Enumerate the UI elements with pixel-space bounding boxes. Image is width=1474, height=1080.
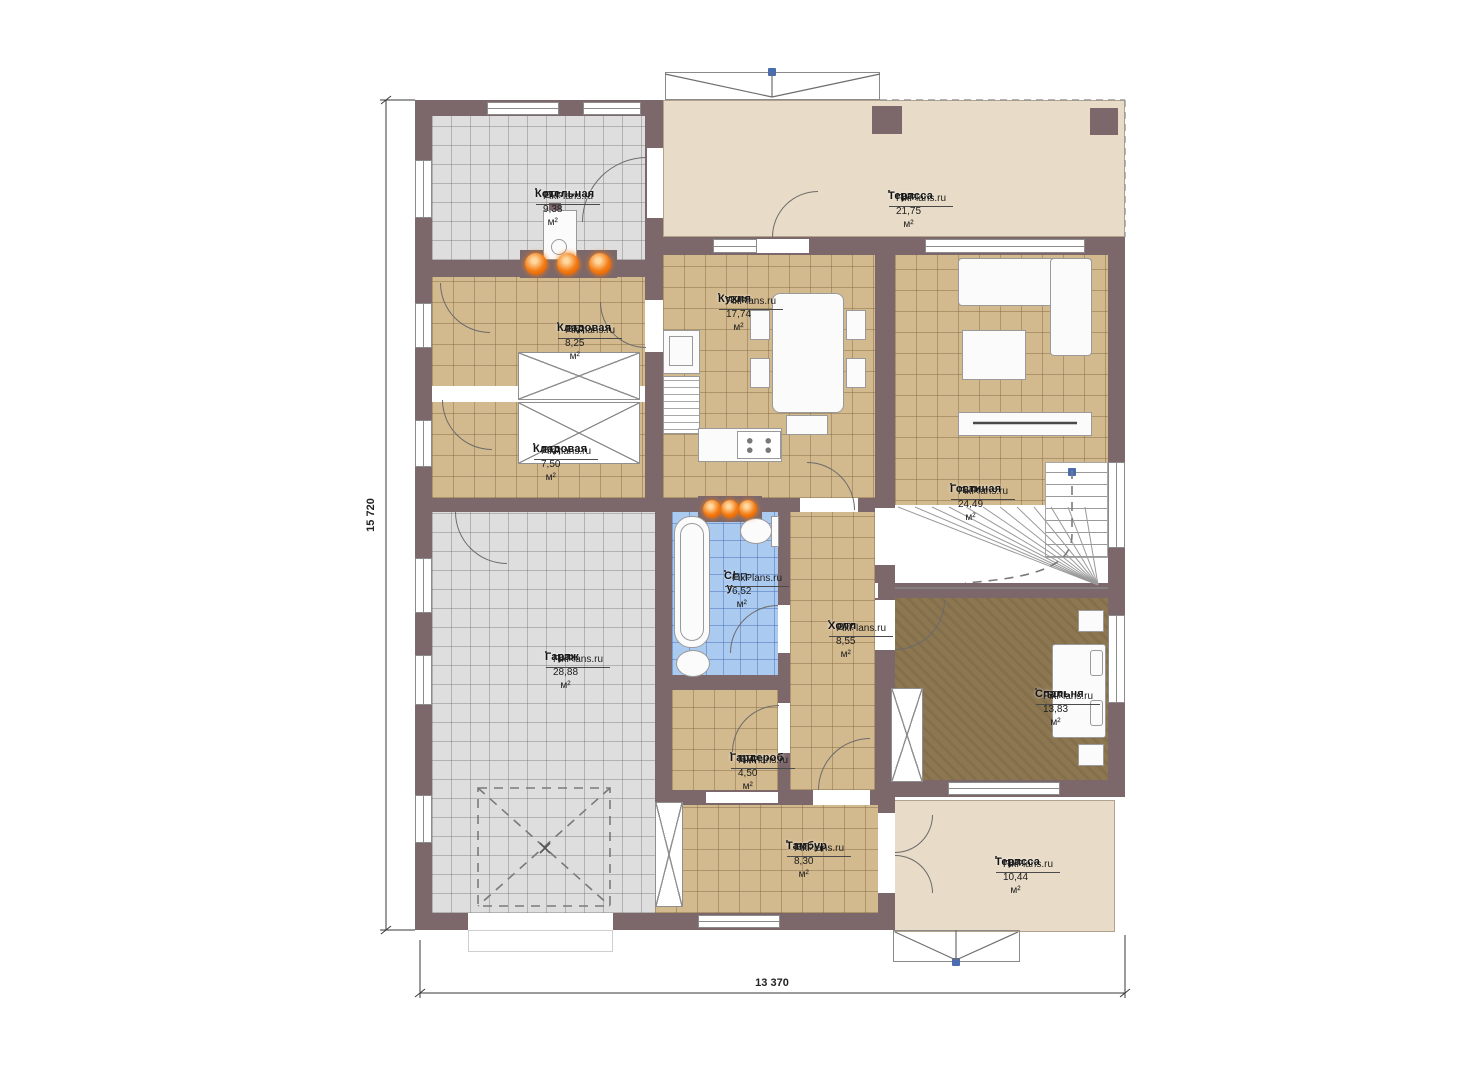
room-info-box: FixPlans.ru ВП: 8,30 м² — [786, 840, 788, 842]
room-info-box: FixPlans.ru ВП: 9,38 м² — [535, 188, 537, 190]
bath-sink — [676, 650, 710, 677]
window — [415, 795, 432, 843]
room-info-box: FixPlans.ru ВП: 17,74 м² — [718, 293, 720, 295]
wall-segment — [432, 498, 660, 512]
door-opening — [647, 148, 663, 218]
room-area: ВП: 8,55 м² — [829, 621, 862, 663]
toilet — [740, 518, 772, 544]
room-area: ВП: 8,30 м² — [787, 841, 820, 883]
window — [415, 420, 432, 467]
room-area: ВП: 4,50 м² — [731, 753, 764, 795]
room-floor-vestibule — [655, 805, 878, 913]
window — [487, 102, 559, 115]
room-area: ВП: 28,88 м² — [546, 652, 585, 694]
reference-point-icon — [952, 958, 960, 966]
heater-icon — [721, 500, 739, 518]
reference-point-icon — [768, 68, 776, 76]
heater-icon — [525, 253, 547, 275]
floor-plan: Котельная FixPlans.ru ВП: 9,38 м² Терасс… — [0, 0, 1474, 1080]
window — [948, 782, 1060, 795]
window — [1108, 462, 1125, 548]
terrace-canopy — [665, 72, 880, 100]
window — [583, 102, 641, 115]
sofa-chaise — [1050, 258, 1092, 356]
door-opening — [878, 813, 895, 893]
window — [698, 915, 780, 928]
window — [415, 160, 432, 218]
kitchen-sink — [669, 336, 693, 366]
door-opening — [645, 300, 663, 352]
room-area: ВП: 6,52 м² — [725, 571, 758, 613]
window — [415, 655, 432, 705]
window — [925, 239, 1085, 253]
heater-icon — [589, 253, 611, 275]
door-opening — [778, 605, 790, 653]
room-info-box: FixPlans.ru ВП: 4,50 м² — [730, 752, 732, 754]
passage-opening — [875, 508, 895, 565]
heater-icon — [739, 500, 757, 518]
pillow — [1090, 650, 1103, 676]
dimension-label-height: 15 720 — [365, 498, 377, 532]
shelving-unit — [891, 688, 923, 782]
room-info-box: FixPlans.ru ВП: 13,83 м² — [1035, 688, 1037, 690]
room-info-box: FixPlans.ru ВП: 10,44 м² — [995, 856, 997, 858]
heater-icon — [557, 253, 579, 275]
stove — [737, 431, 781, 459]
nightstand — [1078, 744, 1104, 766]
wall-segment — [1090, 108, 1118, 135]
door-opening — [778, 703, 790, 753]
heater-icon — [703, 500, 721, 518]
wall-segment — [655, 512, 672, 802]
room-info-box: FixPlans.ru ВП: 7,50 м² — [533, 443, 535, 445]
room-info-box: FixPlans.ru ВП: 8,25 м² — [557, 322, 559, 324]
room-area: ВП: 24,49 м² — [951, 484, 990, 526]
room-area: ВП: 8,25 м² — [558, 323, 591, 365]
chair — [846, 358, 866, 388]
shelving-unit — [655, 802, 683, 907]
wall-segment — [878, 583, 1125, 598]
room-info-box: FixPlans.ru ВП: 24,49 м² — [950, 483, 952, 485]
room-area: ВП: 9,38 м² — [536, 189, 569, 231]
tv-console — [958, 412, 1092, 436]
garage-apron — [468, 930, 613, 952]
room-info-box: FixPlans.ru ВП: 28,88 м² — [545, 651, 547, 653]
chair — [786, 415, 828, 435]
dining-table — [772, 293, 844, 413]
coffee-table — [962, 330, 1026, 380]
room-area: ВП: 21,75 м² — [889, 191, 928, 233]
reference-point-icon — [1068, 468, 1076, 476]
room-area: ВП: 17,74 м² — [719, 294, 758, 336]
wall-segment — [672, 675, 784, 690]
room-area: ВП: 10,44 м² — [996, 857, 1035, 899]
toilet-tank — [771, 516, 779, 547]
door-opening — [757, 239, 809, 253]
room-area: ВП: 13,83 м² — [1036, 689, 1075, 731]
door-opening — [813, 790, 870, 805]
room-info-box: FixPlans.ru ВП: 21,75 м² — [888, 190, 890, 192]
stairs-straight-run — [1045, 462, 1108, 558]
nightstand — [1078, 610, 1104, 632]
dimension-label-width: 13 370 — [755, 977, 789, 989]
chair — [846, 310, 866, 340]
chair — [750, 358, 770, 388]
window — [713, 239, 757, 253]
window — [415, 558, 432, 613]
bathtub-inner — [680, 523, 704, 641]
room-info-box: FixPlans.ru ВП: 8,55 м² — [828, 620, 830, 622]
room-area: ВП: 7,50 м² — [534, 444, 567, 486]
fridge — [663, 376, 700, 434]
wall-segment — [872, 106, 902, 134]
room-info-box: FixPlans.ru ВП: 6,52 м² — [724, 570, 726, 572]
garage-gate-opening — [468, 913, 613, 930]
window — [1108, 615, 1125, 703]
window — [415, 303, 432, 348]
room-floor-garage — [432, 512, 655, 913]
